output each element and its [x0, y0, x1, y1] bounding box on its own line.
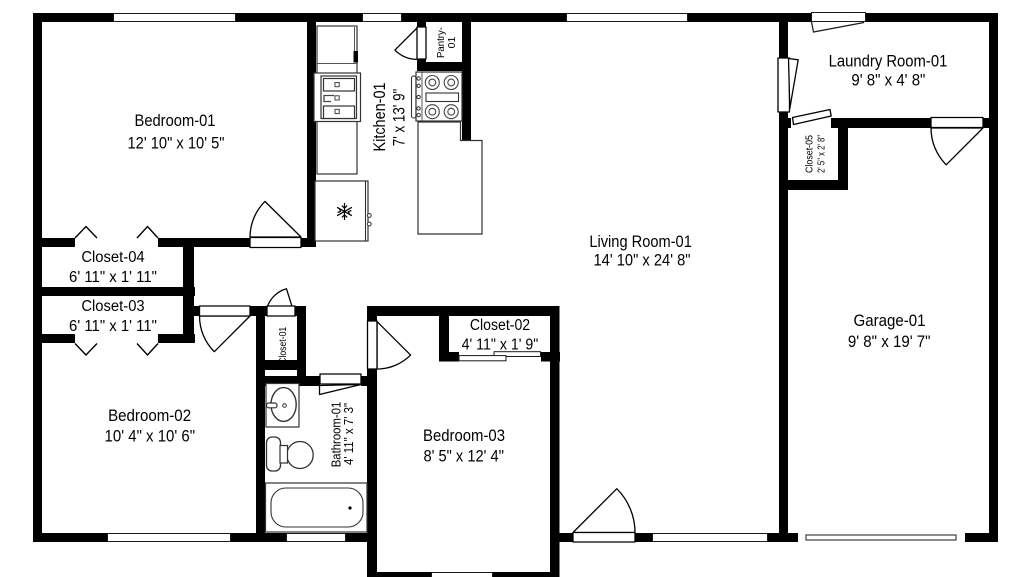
svg-text:Bedroom-01: Bedroom-01	[135, 111, 216, 130]
svg-text:7' x 13' 9": 7' x 13' 9"	[390, 89, 409, 147]
svg-text:Kitchen-01: Kitchen-01	[370, 83, 389, 152]
svg-text:6' 11" x 1' 11": 6' 11" x 1' 11"	[69, 318, 157, 335]
svg-text:12' 10" x 10' 5": 12' 10" x 10' 5"	[128, 134, 225, 153]
svg-text:2' 5" x 2' 8": 2' 5" x 2' 8"	[816, 135, 828, 173]
svg-text:8' 5" x 12' 4": 8' 5" x 12' 4"	[423, 447, 504, 466]
svg-text:9' 8" x 4' 8": 9' 8" x 4' 8"	[851, 70, 925, 89]
svg-text:4' 11" x 1' 9": 4' 11" x 1' 9"	[462, 337, 539, 354]
svg-text:01: 01	[446, 37, 458, 49]
svg-text:9' 8" x 19' 7": 9' 8" x 19' 7"	[848, 332, 931, 351]
svg-text:Closet-02: Closet-02	[470, 317, 530, 334]
svg-text:14' 10" x 24' 8": 14' 10" x 24' 8"	[594, 250, 691, 269]
svg-text:Laundry Room-01: Laundry Room-01	[829, 52, 948, 71]
svg-text:6' 11" x 1' 11": 6' 11" x 1' 11"	[69, 269, 157, 286]
svg-text:10' 4" x 10' 6": 10' 4" x 10' 6"	[105, 426, 196, 445]
svg-text:Closet-04: Closet-04	[81, 249, 145, 266]
svg-text:Bedroom-02: Bedroom-02	[108, 406, 191, 425]
svg-text:Closet-05: Closet-05	[804, 135, 816, 173]
svg-text:Bedroom-03: Bedroom-03	[423, 426, 505, 445]
svg-text:Closet-03: Closet-03	[81, 298, 144, 315]
svg-text:4' 11" x 7' 3": 4' 11" x 7' 3"	[341, 403, 356, 465]
svg-text:Living Room-01: Living Room-01	[589, 232, 692, 251]
svg-text:Closet-01: Closet-01	[277, 327, 289, 364]
svg-text:Garage-01: Garage-01	[854, 311, 926, 330]
